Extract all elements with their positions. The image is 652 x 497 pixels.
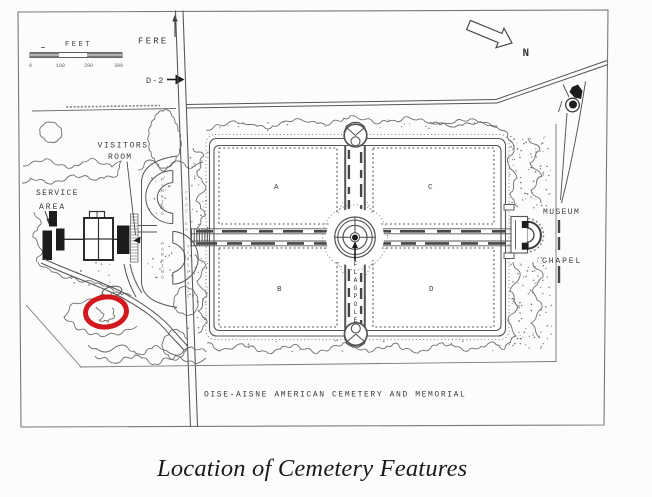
svg-text:A: A	[274, 184, 279, 192]
svg-text:D: D	[429, 286, 434, 294]
svg-text:-: -	[185, 217, 188, 221]
svg-text:R: R	[187, 258, 190, 262]
svg-text:0: 0	[29, 63, 32, 69]
svg-text:N: N	[523, 48, 530, 60]
svg-text:C: C	[428, 184, 433, 192]
svg-text:P: P	[354, 293, 358, 300]
svg-text:R: R	[161, 252, 164, 258]
svg-text:I: I	[161, 199, 164, 205]
svg-text:I: I	[161, 263, 164, 269]
svg-text:L: L	[354, 309, 358, 316]
svg-text:K: K	[161, 258, 164, 264]
svg-text:F: F	[185, 192, 188, 196]
svg-text:MUSEUM: MUSEUM	[543, 208, 580, 217]
svg-text:E: E	[185, 223, 188, 227]
svg-text:200: 200	[84, 63, 93, 69]
svg-text:300: 300	[114, 63, 123, 69]
svg-text:B: B	[277, 286, 282, 294]
svg-text:CHAPEL: CHAPEL	[542, 257, 582, 266]
svg-text:E: E	[185, 198, 188, 202]
svg-text:VISITORS: VISITORS	[98, 142, 149, 151]
svg-text:D: D	[192, 295, 195, 299]
svg-text:O: O	[354, 301, 358, 308]
svg-text:A: A	[354, 277, 358, 284]
svg-text:FERE: FERE	[138, 37, 168, 47]
svg-text:S: S	[187, 296, 190, 300]
svg-text:2: 2	[192, 307, 195, 311]
svg-text:F: F	[354, 261, 358, 268]
svg-text:D-2: D-2	[146, 76, 164, 86]
svg-text:L: L	[354, 269, 358, 276]
svg-text:-: -	[192, 301, 195, 305]
svg-text:E: E	[185, 211, 188, 215]
svg-text:R: R	[161, 188, 164, 194]
svg-text:E: E	[354, 317, 358, 324]
svg-text:AREA: AREA	[39, 203, 66, 212]
svg-text:K: K	[161, 194, 164, 200]
svg-text:A: A	[187, 252, 190, 256]
svg-text:N: N	[161, 205, 164, 211]
svg-text:R: R	[185, 204, 188, 208]
svg-text:SERVICE: SERVICE	[36, 189, 79, 198]
svg-text:G: G	[161, 275, 164, 281]
svg-text:P: P	[161, 241, 164, 247]
svg-text:G: G	[161, 211, 164, 217]
svg-text:P: P	[161, 177, 164, 183]
svg-text:ROOM: ROOM	[108, 153, 132, 162]
svg-text:N: N	[185, 229, 188, 233]
svg-text:T: T	[187, 246, 190, 250]
svg-text:O: O	[187, 283, 190, 287]
svg-text:I: I	[187, 289, 190, 293]
svg-text:G: G	[354, 285, 358, 292]
svg-text:D: D	[187, 265, 190, 269]
svg-text:A: A	[161, 183, 164, 189]
svg-text:A: A	[161, 247, 164, 253]
svg-text:FEET: FEET	[65, 41, 92, 49]
svg-text:OISE-AISNE AMERICAN CEMETERY A: OISE-AISNE AMERICAN CEMETERY AND MEMORIA…	[204, 391, 466, 400]
svg-text:N: N	[161, 269, 164, 275]
svg-text:100: 100	[56, 63, 65, 69]
